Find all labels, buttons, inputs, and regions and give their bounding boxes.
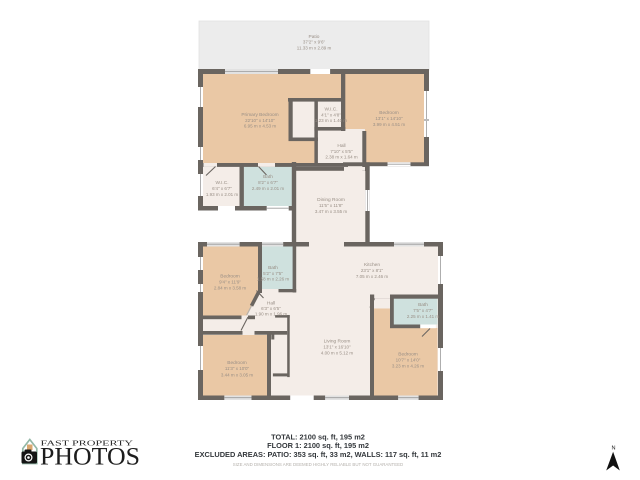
svg-text:3.44 m x 3.05 m: 3.44 m x 3.05 m [221,372,254,377]
svg-text:3.23 m x 4.26 m: 3.23 m x 4.26 m [392,364,425,369]
svg-text:SIZE AND DIMENSIONS ARE DEEMED: SIZE AND DIMENSIONS ARE DEEMED HIGHLY RE… [233,462,403,467]
svg-text:37'2" x 9'6": 37'2" x 9'6" [303,40,326,45]
svg-text:3.99 m x 4.51 m: 3.99 m x 4.51 m [373,122,406,127]
svg-text:13'1" x 14'10": 13'1" x 14'10" [375,116,403,121]
svg-text:23'1" x 8'1": 23'1" x 8'1" [361,268,384,273]
svg-text:6'3" x 6'5": 6'3" x 6'5" [261,306,281,311]
svg-text:8'2" x 6'7": 8'2" x 6'7" [258,180,278,185]
svg-text:9'4" x 11'9": 9'4" x 11'9" [219,279,241,284]
svg-text:4.00 m x 5.12 m: 4.00 m x 5.12 m [321,351,354,356]
svg-text:13'1" x 16'10": 13'1" x 16'10" [323,345,351,350]
svg-text:W.I.C.: W.I.C. [215,180,228,186]
svg-text:11'3" x 10'0": 11'3" x 10'0" [225,366,250,371]
svg-text:11.33 m x 2.89 m: 11.33 m x 2.89 m [297,45,332,50]
svg-text:2.84 m x 3.58 m: 2.84 m x 3.58 m [214,286,247,291]
svg-text:EXCLUDED AREAS: PATIO: 353 sq.: EXCLUDED AREAS: PATIO: 353 sq. ft, 33 m2… [195,450,442,459]
svg-text:2.38 m x 1.64 m: 2.38 m x 1.64 m [325,155,358,160]
svg-text:PHOTOS: PHOTOS [40,444,140,471]
svg-text:6'4" x 6'7": 6'4" x 6'7" [212,186,232,191]
svg-text:1.23 m x 1.40 m: 1.23 m x 1.40 m [315,118,348,123]
svg-text:2.49 m x 2.01 m: 2.49 m x 2.01 m [252,186,285,191]
svg-text:1.93 m x 2.01 m: 1.93 m x 2.01 m [206,192,239,197]
svg-text:FLOOR 1: 2100 sq. ft, 195 m2: FLOOR 1: 2100 sq. ft, 195 m2 [267,441,369,450]
svg-text:7.05 m x 2.46 m: 7.05 m x 2.46 m [356,274,389,279]
svg-text:4'1" x 4'8": 4'1" x 4'8" [321,112,341,117]
svg-text:1.58 m x 2.26 m: 1.58 m x 2.26 m [257,277,290,282]
svg-text:3.47 m x 3.55 m: 3.47 m x 3.55 m [315,209,348,214]
svg-text:22'10" x 14'10": 22'10" x 14'10" [245,118,275,123]
svg-text:5'2" x 7'5": 5'2" x 7'5" [263,271,283,276]
svg-text:7'10" x 5'5": 7'10" x 5'5" [330,149,353,154]
svg-text:7'5" x 4'7": 7'5" x 4'7" [413,308,433,313]
svg-text:N: N [611,446,615,452]
svg-text:2.25 m x 1.41 m: 2.25 m x 1.41 m [407,314,440,319]
svg-text:10'7" x 14'0": 10'7" x 14'0" [396,358,421,363]
svg-text:6.95 m x 4.53 m: 6.95 m x 4.53 m [244,123,277,128]
svg-text:11'5" x 11'8": 11'5" x 11'8" [319,203,343,208]
svg-text:1.90 m x 1.96 m: 1.90 m x 1.96 m [255,312,288,317]
